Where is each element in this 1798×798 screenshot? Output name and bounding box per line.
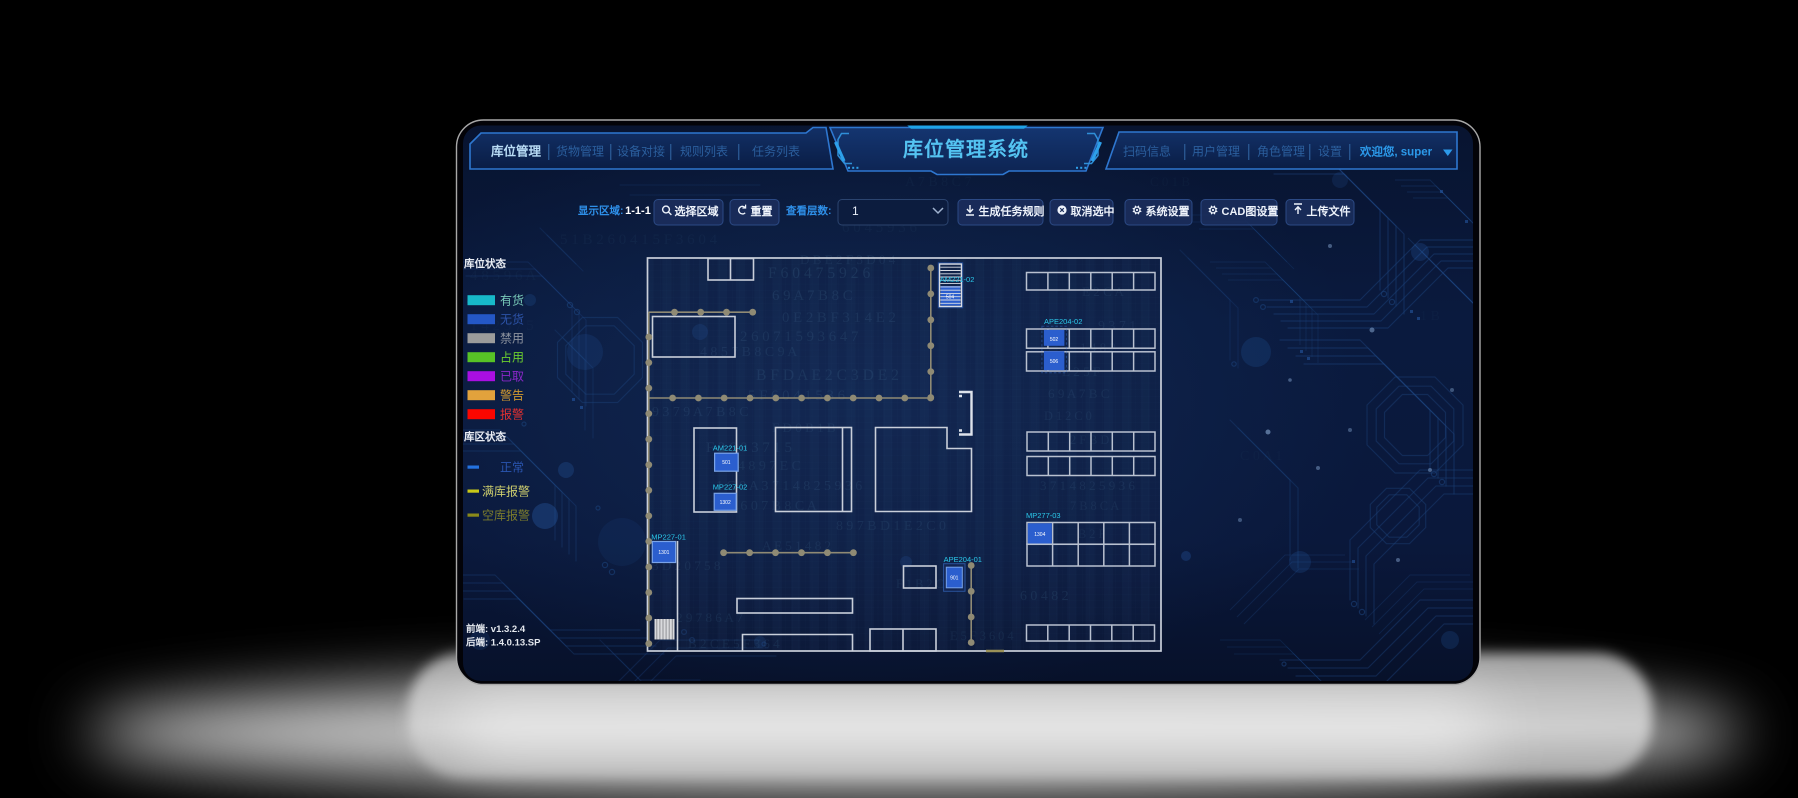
svg-text:系统设置: 系统设置	[1146, 204, 1190, 218]
svg-text:前端: v1.3.2.4: 前端: v1.3.2.4	[466, 623, 526, 635]
svg-text:504: 504	[946, 295, 955, 301]
svg-text:上传文件: 上传文件	[1307, 204, 1351, 218]
svg-text:生成任务规则: 生成任务规则	[979, 204, 1045, 218]
svg-text:设备对接: 设备对接	[617, 144, 665, 159]
svg-text:1 B: 1 B	[1420, 309, 1440, 324]
svg-text:1-1-1: 1-1-1	[625, 205, 651, 217]
svg-text:MP227-01: MP227-01	[651, 533, 686, 542]
svg-text:欢迎您, super: 欢迎您, super	[1359, 145, 1433, 159]
svg-text:AM221-02: AM221-02	[940, 275, 975, 284]
svg-text:任务列表: 任务列表	[752, 144, 800, 159]
svg-text:选择区域: 选择区域	[675, 204, 719, 218]
svg-text:查看层数:: 查看层数:	[785, 204, 832, 217]
svg-text:A 7 B 8 C 7: A 7 B 8 C 7	[905, 175, 972, 190]
svg-text:506: 506	[1050, 359, 1059, 365]
svg-text:设置: 设置	[1318, 145, 1342, 159]
svg-text:MP277-03: MP277-03	[1026, 511, 1061, 520]
svg-text:MP227-02: MP227-02	[713, 483, 748, 492]
svg-text:角色管理: 角色管理	[1257, 144, 1305, 159]
svg-text:CAD图设置: CAD图设置	[1222, 204, 1279, 218]
svg-text:取消选中: 取消选中	[1071, 204, 1115, 218]
svg-text:报警: 报警	[500, 407, 524, 422]
svg-text:规则列表: 规则列表	[680, 144, 728, 159]
svg-text:警告: 警告	[500, 388, 524, 403]
svg-text:已取: 已取	[500, 370, 524, 384]
svg-text:满库报警: 满库报警	[482, 484, 530, 499]
svg-text:正常: 正常	[500, 461, 524, 475]
svg-text:C 0 1 B: C 0 1 B	[1150, 174, 1190, 189]
svg-text:901: 901	[950, 576, 959, 582]
svg-text:1301: 1301	[658, 550, 669, 556]
svg-text:1: 1	[852, 204, 859, 218]
svg-text:APE204-01: APE204-01	[944, 555, 982, 564]
svg-text:库位管理: 库位管理	[491, 144, 542, 159]
svg-text:占用: 占用	[500, 350, 524, 365]
svg-text:C 0 A 1: C 0 A 1	[1240, 449, 1282, 464]
svg-text:4 8 5 9 6 A: 4 8 5 9 6 A	[470, 268, 536, 284]
svg-text:用户管理: 用户管理	[1192, 144, 1240, 159]
svg-text:无货: 无货	[500, 312, 524, 327]
svg-text:库位状态: 库位状态	[464, 257, 506, 270]
svg-text:货物管理: 货物管理	[556, 144, 604, 159]
svg-text:库区状态: 库区状态	[464, 430, 506, 443]
svg-text:重置: 重置	[751, 204, 773, 218]
svg-text:5 1 B 2 6 0 4 1 5 F 3 6 0 4: 5 1 B 2 6 0 4 1 5 F 3 6 0 4	[560, 232, 718, 248]
svg-text:扫码信息: 扫码信息	[1123, 144, 1171, 159]
svg-text:AM221-01: AM221-01	[713, 444, 748, 453]
svg-text:502: 502	[1050, 337, 1059, 343]
svg-text:禁用: 禁用	[500, 332, 524, 346]
svg-text:1304: 1304	[1034, 532, 1045, 538]
svg-text:库位管理系统: 库位管理系统	[903, 137, 1029, 161]
svg-text:APE204-02: APE204-02	[1044, 317, 1082, 326]
svg-text:后端: 1.4.0.13.SP: 后端: 1.4.0.13.SP	[466, 637, 541, 649]
svg-text:501: 501	[722, 460, 731, 466]
svg-text:空库报警: 空库报警	[482, 508, 530, 523]
svg-text:显示区域:: 显示区域:	[578, 204, 624, 217]
svg-text:1302: 1302	[720, 500, 731, 506]
svg-text:有货: 有货	[500, 293, 524, 308]
